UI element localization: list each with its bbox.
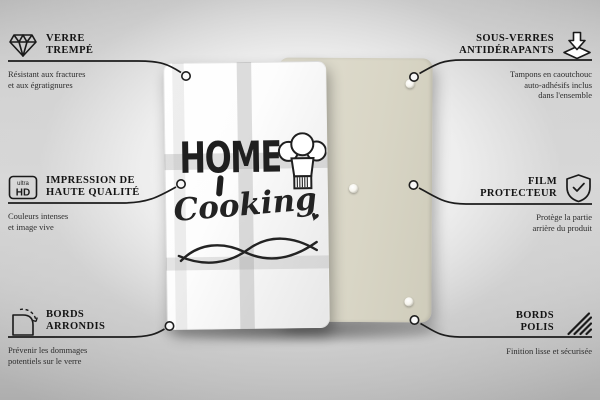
callout-description: Prévenir les dommages — [8, 345, 166, 356]
callout-description: auto-adhésifs inclus — [434, 80, 592, 91]
callout-title: BORDS — [516, 310, 554, 322]
callout-title: TREMPÉ — [46, 45, 93, 57]
callout-description: Résistant aux fractures — [8, 69, 166, 80]
callout-impression-qualite: ultra HD IMPRESSION DE HAUTE QUALITÉ Cou… — [8, 172, 166, 232]
ultra-hd-icon: ultra HD — [8, 174, 38, 201]
non-slip-pad-icon — [562, 30, 592, 60]
callout-description: arrière du produit — [434, 223, 592, 234]
callout-title: POLIS — [516, 322, 554, 334]
callout-bords-arrondis: BORDS ARRONDIS Prévenir les dommages pot… — [8, 306, 166, 366]
callout-title: ANTIDÉRAPANTS — [459, 45, 554, 57]
callout-title: HAUTE QUALITÉ — [46, 187, 140, 199]
callout-title: FILM — [480, 176, 557, 188]
polished-edge-icon — [562, 308, 592, 336]
rubber-pad — [404, 297, 413, 306]
callout-film-protecteur: FILM PROTECTEUR Protège la partie arrièr… — [434, 173, 592, 233]
callout-description: Tampons en caoutchouc — [434, 69, 592, 80]
product-infographic: HOME Cooking ♥ — [0, 0, 600, 400]
callout-title: ARRONDIS — [46, 321, 105, 333]
rubber-pad — [349, 184, 358, 193]
callout-title: SOUS-VERRES — [459, 33, 554, 45]
callout-description: et image vive — [8, 222, 166, 233]
cooking-word: Cooking — [165, 180, 325, 229]
svg-text:HD: HD — [16, 187, 30, 198]
callout-bords-polis: BORDS POLIS Finition lisse et sécurisée — [434, 307, 592, 357]
swash-flourish — [175, 232, 321, 268]
board-front-panel: HOME Cooking ♥ — [163, 61, 330, 330]
callout-title: PROTECTEUR — [480, 188, 557, 200]
callout-title: IMPRESSION DE — [46, 175, 140, 187]
rubber-pad — [406, 79, 415, 88]
callout-description: Couleurs intenses — [8, 211, 166, 222]
callout-title: VERRE — [46, 33, 93, 45]
callout-description: dans l'ensemble — [434, 90, 592, 101]
callout-description: Protège la partie — [434, 212, 592, 223]
callout-verre-trempe: VERRE TREMPÉ Résistant aux fractures et … — [8, 30, 166, 90]
rounded-corner-icon — [8, 307, 38, 336]
svg-text:ultra: ultra — [17, 181, 29, 187]
diamond-icon — [8, 32, 38, 58]
callout-sous-verres: SOUS-VERRES ANTIDÉRAPANTS Tampons en cao… — [434, 30, 592, 101]
callout-description: et aux égratignures — [8, 80, 166, 91]
callout-description: Finition lisse et sécurisée — [434, 346, 592, 357]
shield-check-icon — [565, 173, 592, 203]
callout-description: potentiels sur le verre — [8, 356, 166, 367]
home-word: HOME — [179, 137, 281, 181]
callout-title: BORDS — [46, 309, 105, 321]
